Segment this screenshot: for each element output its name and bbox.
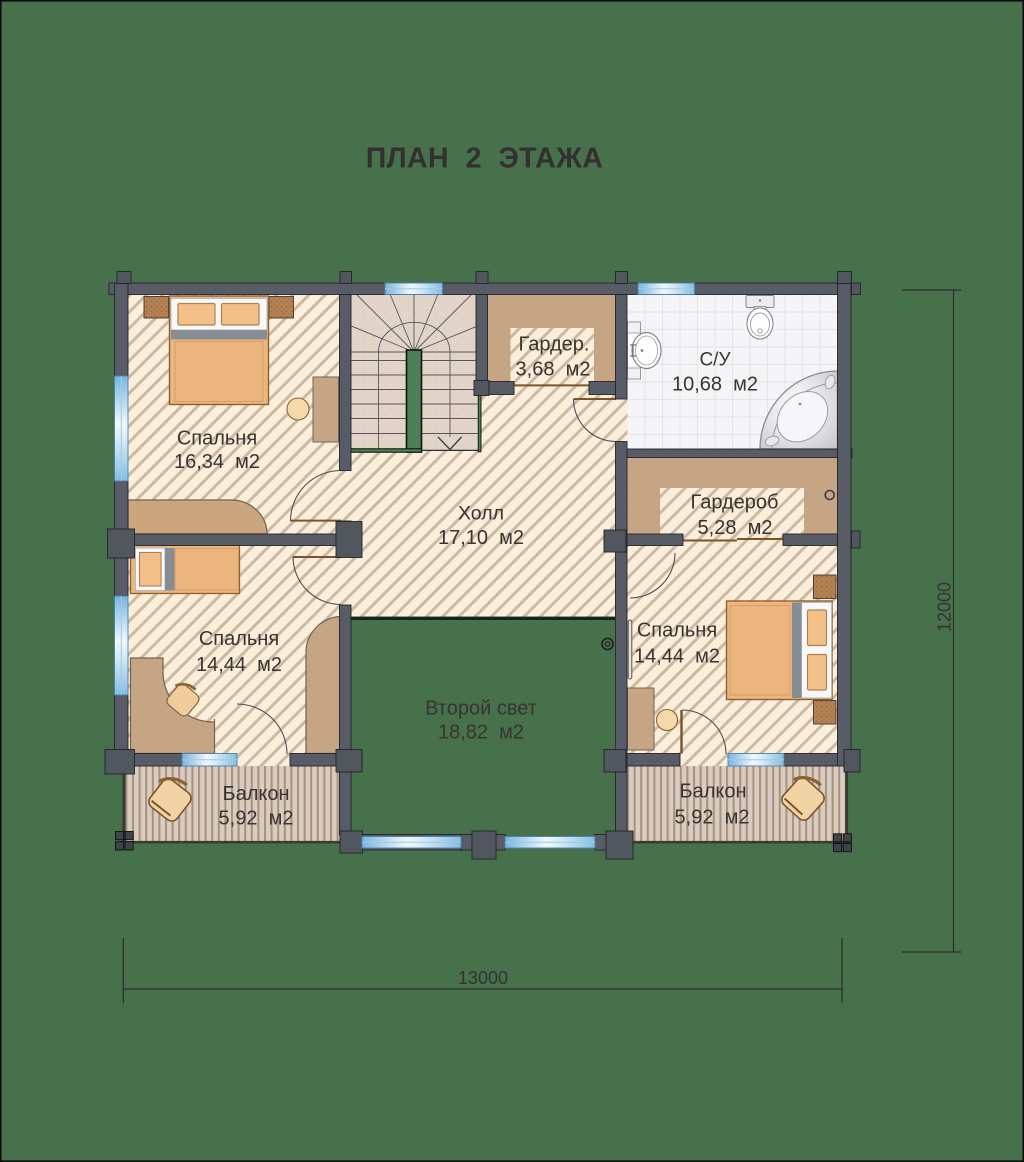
svg-text:Второй свет: Второй свет xyxy=(425,698,537,720)
svg-text:Спальня: Спальня xyxy=(177,428,257,450)
svg-text:10,68 м2: 10,68 м2 xyxy=(672,374,758,396)
svg-text:Гардероб: Гардероб xyxy=(691,492,779,514)
svg-text:С/У: С/У xyxy=(699,350,731,371)
svg-text:18,82 м2: 18,82 м2 xyxy=(438,722,524,744)
svg-text:14,44 м2: 14,44 м2 xyxy=(634,646,720,668)
svg-text:16,34 м2: 16,34 м2 xyxy=(174,451,260,473)
svg-text:Балкон: Балкон xyxy=(222,783,289,805)
svg-text:5,28 м2: 5,28 м2 xyxy=(698,517,773,539)
svg-text:5,92 м2: 5,92 м2 xyxy=(675,807,750,829)
svg-text:Спальня: Спальня xyxy=(199,628,279,650)
svg-text:ПЛАН 2 ЭТАЖА: ПЛАН 2 ЭТАЖА xyxy=(366,143,604,175)
svg-text:17,10 м2: 17,10 м2 xyxy=(438,527,524,549)
svg-text:3,68 м2: 3,68 м2 xyxy=(516,359,591,381)
svg-text:Гардер.: Гардер. xyxy=(519,334,590,356)
svg-text:12000: 12000 xyxy=(935,582,955,632)
svg-text:Балкон: Балкон xyxy=(679,781,746,803)
svg-text:Холл: Холл xyxy=(458,503,504,525)
svg-text:Спальня: Спальня xyxy=(637,620,717,642)
svg-text:5,92 м2: 5,92 м2 xyxy=(219,808,294,830)
svg-text:14,44 м2: 14,44 м2 xyxy=(196,654,282,676)
svg-text:13000: 13000 xyxy=(458,968,508,988)
